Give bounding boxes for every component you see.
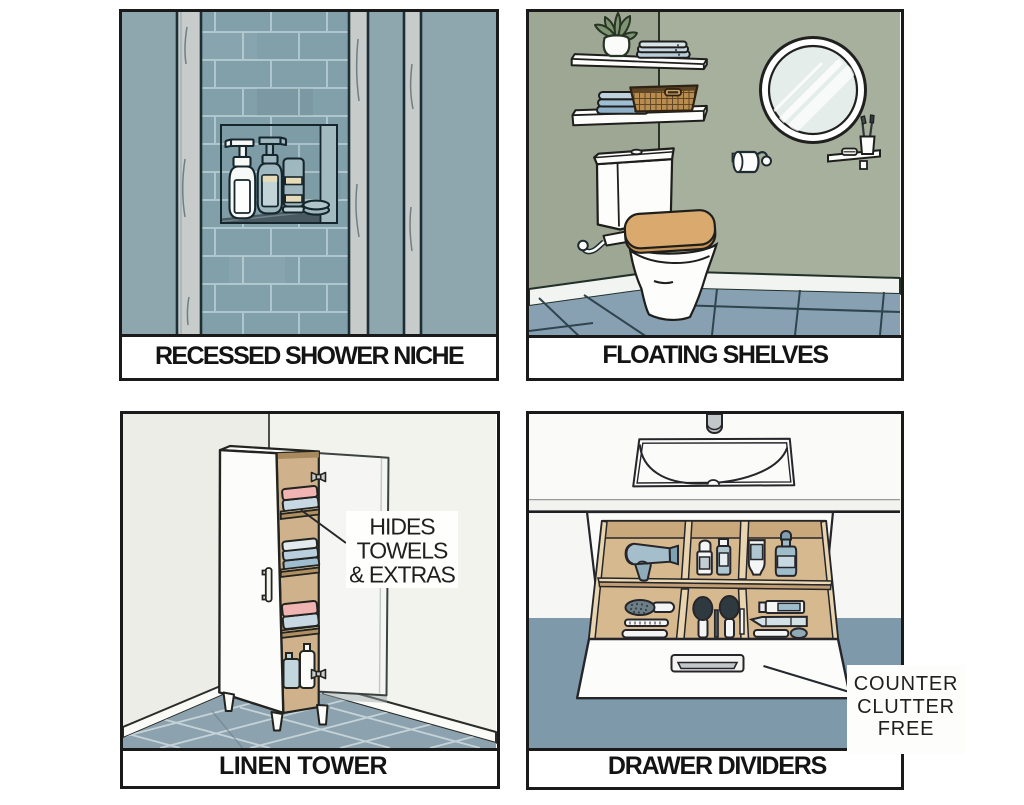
svg-text:& EXTRAS: & EXTRAS	[349, 562, 455, 588]
svg-text:HIDES: HIDES	[369, 514, 435, 540]
svg-text:TOWELS: TOWELS	[357, 538, 448, 564]
